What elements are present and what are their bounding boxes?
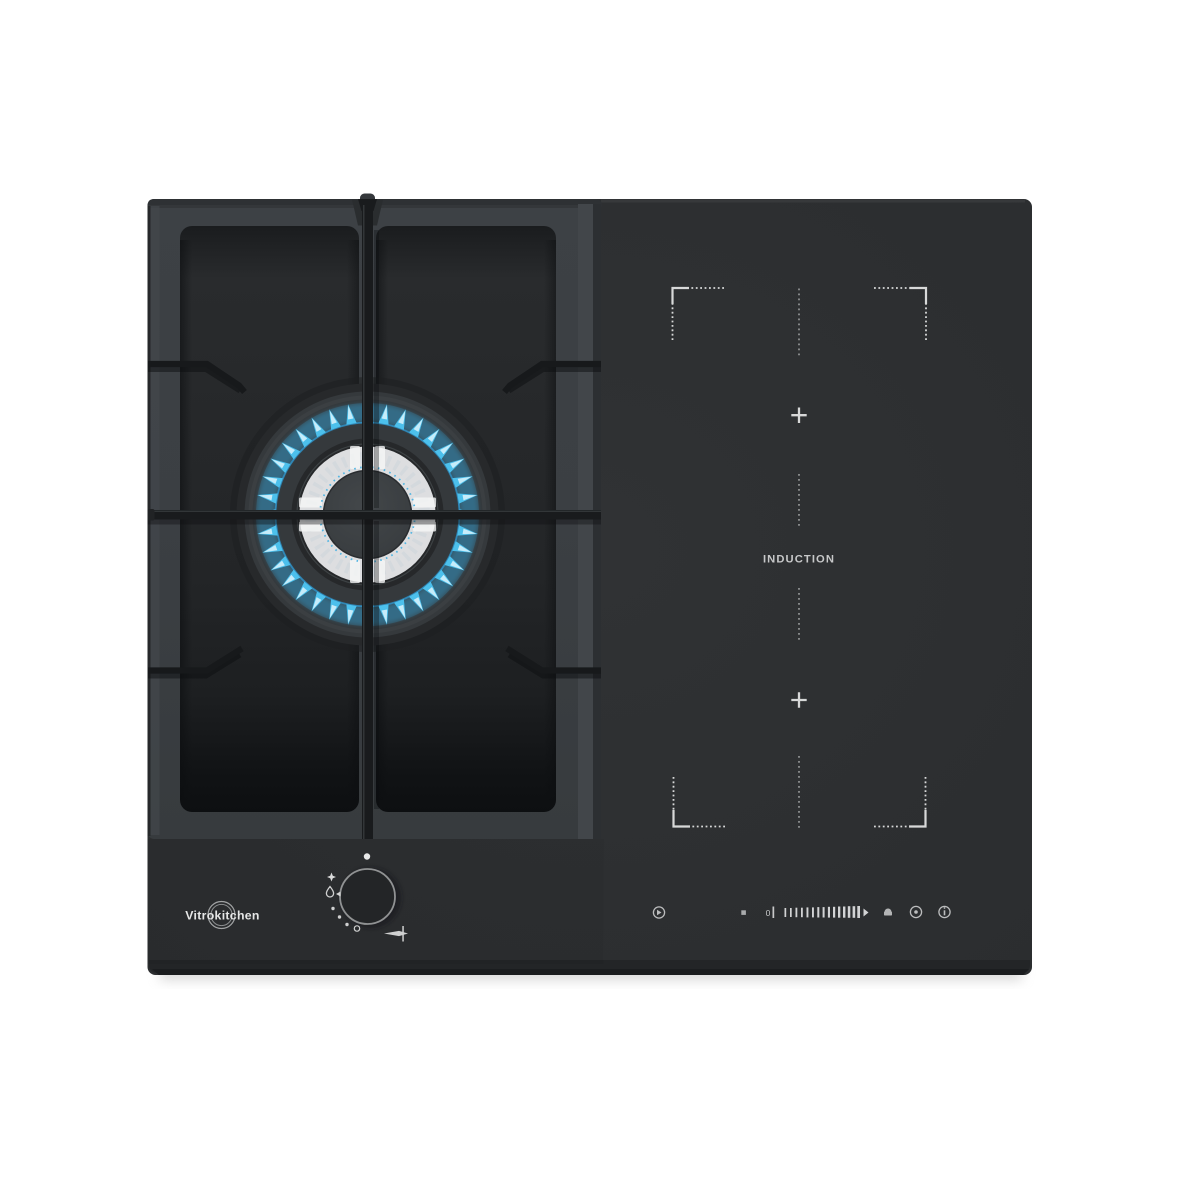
svg-text:0: 0	[766, 908, 771, 918]
svg-text:Vitrokitchen: Vitrokitchen	[185, 908, 259, 922]
svg-text:INDUCTION: INDUCTION	[763, 554, 835, 566]
